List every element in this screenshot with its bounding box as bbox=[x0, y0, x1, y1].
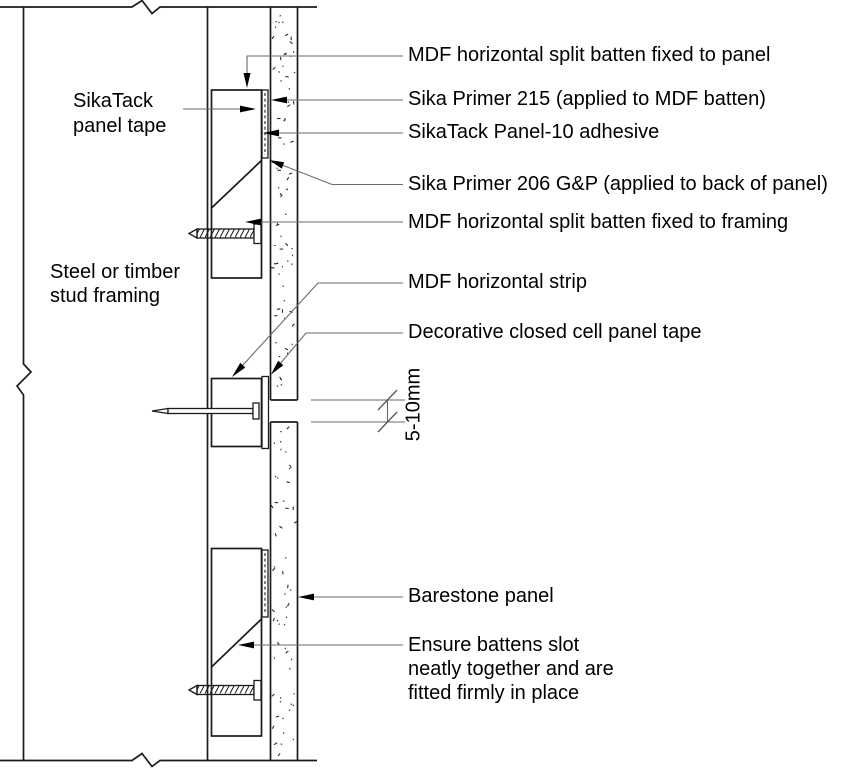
label-sikatack-panel-tape: SikaTack panel tape bbox=[73, 89, 166, 139]
leader-sika-primer-206 bbox=[269, 160, 403, 185]
mdf-strip-middle bbox=[262, 377, 269, 449]
screw-threaded-shaft bbox=[197, 686, 254, 695]
label-battens-note: Ensure battens slot neatly together and … bbox=[408, 633, 614, 705]
label-mdf-batten-framing: MDF horizontal split batten fixed to fra… bbox=[408, 211, 788, 234]
label-sikatack-panel10-adhesive: SikaTack Panel-10 adhesive bbox=[408, 121, 659, 144]
bottom-break-line bbox=[0, 754, 317, 767]
arrowhead bbox=[271, 97, 287, 104]
nail-tip bbox=[152, 409, 168, 414]
leader-decorative-tape bbox=[271, 333, 403, 375]
label-barestone-panel: Barestone panel bbox=[408, 585, 554, 608]
split-batten-assembly-top bbox=[212, 90, 269, 278]
arrowhead bbox=[298, 594, 314, 601]
split-batten-assembly-bottom bbox=[212, 549, 269, 737]
arrowhead bbox=[244, 73, 251, 88]
top-break-line bbox=[0, 1, 317, 14]
stud-left-break-line bbox=[17, 7, 31, 761]
leader-mdf-batten-framing bbox=[245, 219, 403, 226]
screw-tip bbox=[189, 686, 197, 695]
construction-detail-diagram: SikaTack panel tape Steel or timber stud… bbox=[0, 0, 856, 768]
joint-dimension bbox=[311, 390, 405, 432]
leader-battens-note bbox=[238, 642, 403, 649]
label-mdf-horizontal-strip: MDF horizontal strip bbox=[408, 271, 587, 294]
leader-sika-primer-215 bbox=[271, 97, 403, 104]
screw-head bbox=[254, 681, 261, 701]
nail-shaft bbox=[168, 409, 253, 414]
leader-mdf-strip bbox=[232, 283, 403, 377]
leader-barestone-panel bbox=[298, 594, 403, 601]
screw-tip bbox=[189, 229, 197, 238]
label-stud-framing: Steel or timber stud framing bbox=[50, 260, 180, 308]
panel-joint-gap bbox=[271, 400, 298, 422]
label-sika-primer-215: Sika Primer 215 (applied to MDF batten) bbox=[408, 88, 766, 111]
nail-head bbox=[253, 403, 259, 419]
barestone-panel-section bbox=[271, 7, 298, 761]
leader-sikatack-panel10 bbox=[263, 130, 403, 137]
label-sika-primer-206: Sika Primer 206 G&P (applied to back of … bbox=[408, 173, 828, 196]
leader-mdf-batten-panel bbox=[244, 56, 404, 88]
label-joint-dimension: 5-10mm bbox=[401, 365, 428, 445]
label-mdf-batten-panel: MDF horizontal split batten fixed to pan… bbox=[408, 44, 770, 67]
screw-threaded-shaft bbox=[197, 229, 254, 238]
label-decorative-tape: Decorative closed cell panel tape bbox=[408, 321, 702, 344]
screw-head bbox=[254, 224, 261, 244]
